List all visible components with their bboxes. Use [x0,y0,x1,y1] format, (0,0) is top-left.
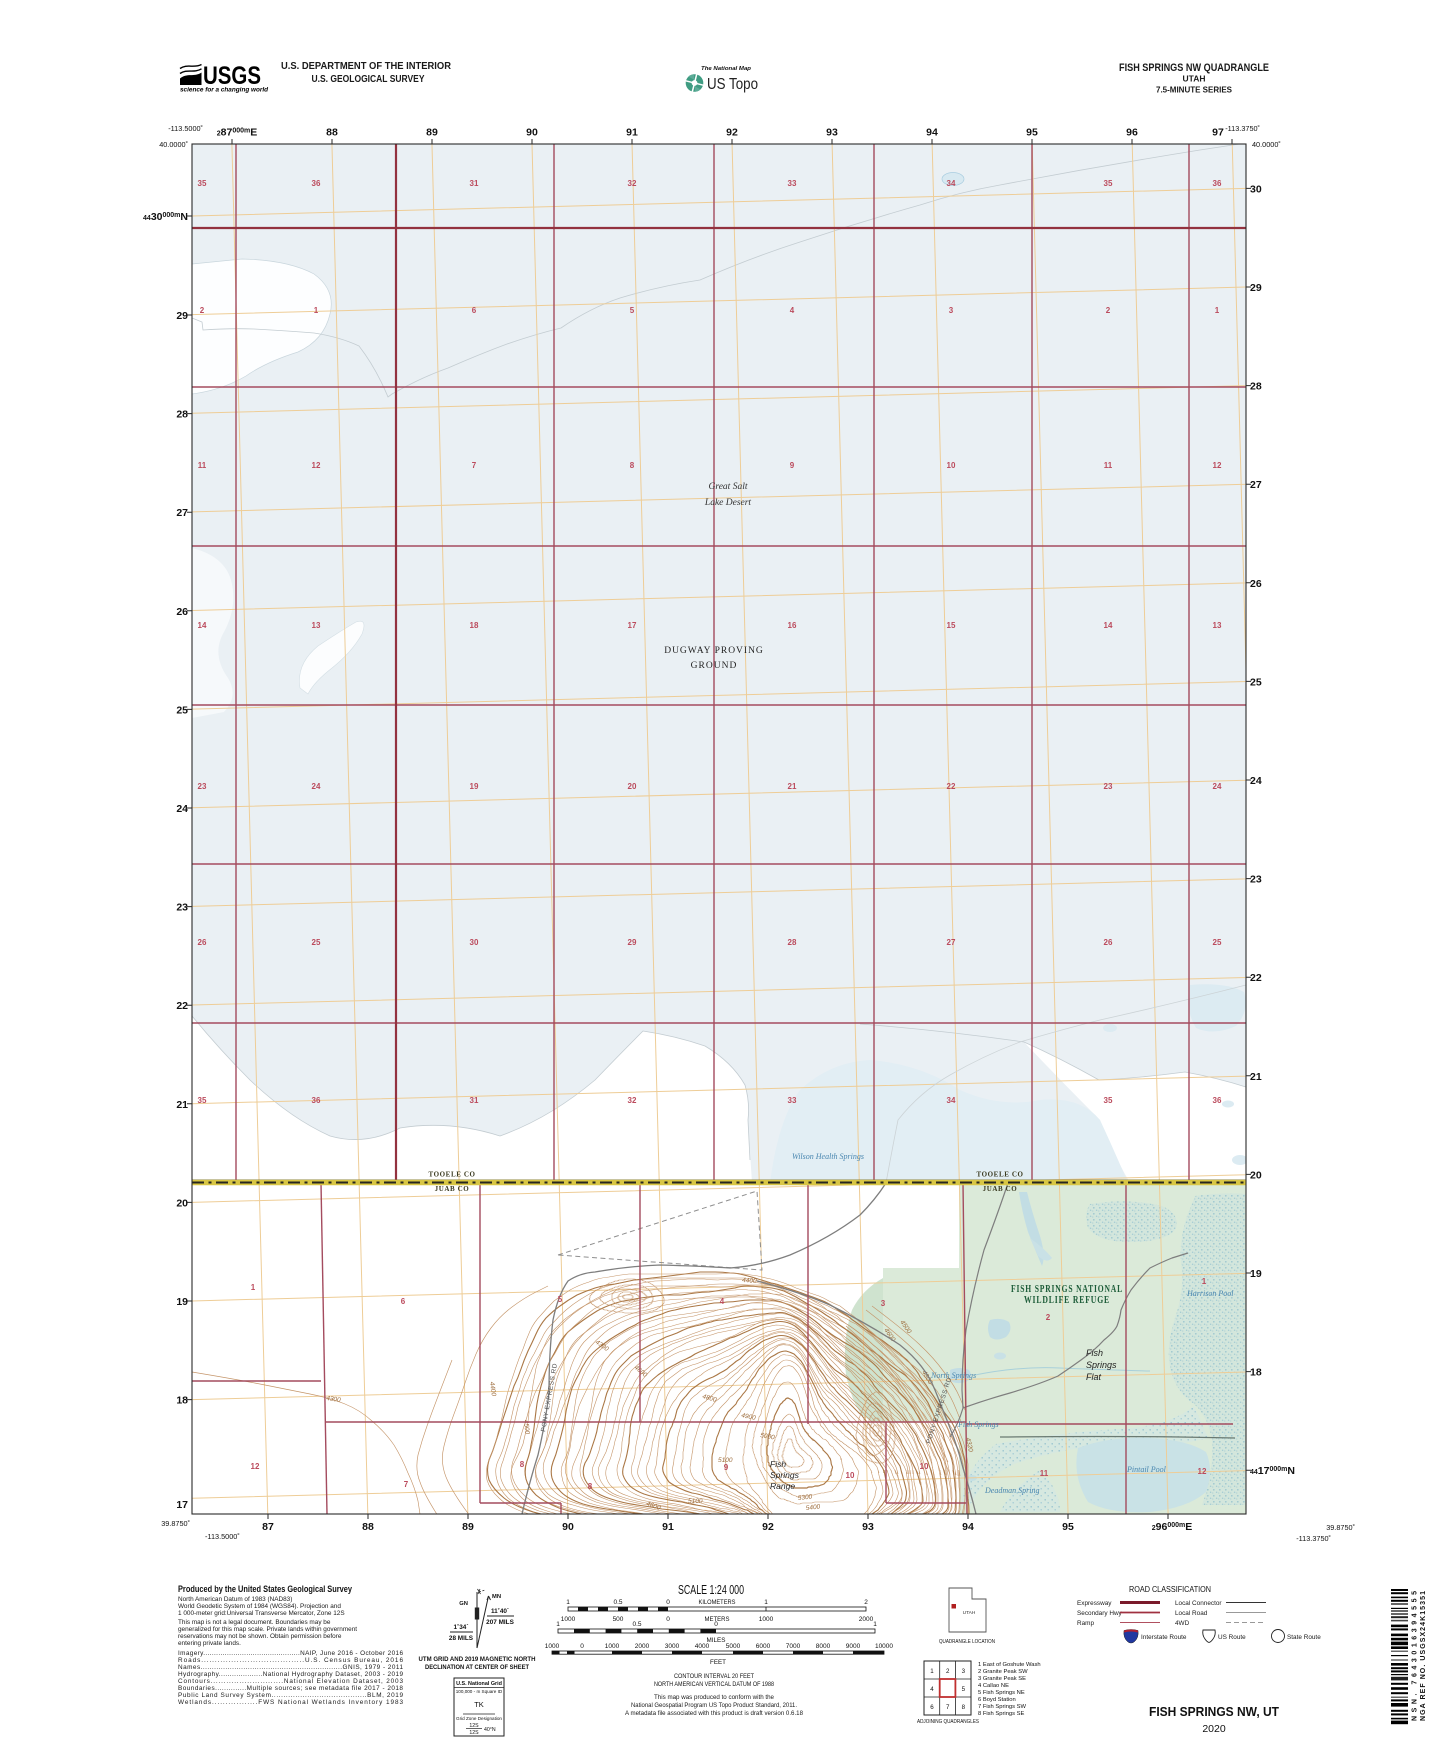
svg-text:Harrison Pool: Harrison Pool [1186,1289,1234,1298]
svg-text:7: 7 [472,461,477,470]
svg-text:12S: 12S [469,1723,479,1729]
svg-text:94: 94 [926,127,938,139]
svg-text:3 Granite Peak SE: 3 Granite Peak SE [978,1676,1026,1682]
svg-text:12: 12 [1198,1467,1207,1476]
svg-text:5100: 5100 [688,1498,703,1505]
svg-text:9: 9 [724,1463,729,1472]
svg-text:18: 18 [470,621,479,630]
svg-text:Hydrography...................: Hydrography....................National … [178,1671,403,1678]
svg-text:Boundaries..............Multip: Boundaries..............Multiple sources… [178,1685,403,1692]
svg-text:3: 3 [881,1299,886,1308]
svg-text:entering private lands.: entering private lands. [178,1640,241,1647]
svg-text:87: 87 [262,1521,274,1533]
svg-text:3: 3 [949,306,954,315]
svg-text:26: 26 [1250,578,1262,590]
svg-text:4400: 4400 [742,1277,757,1285]
svg-text:14: 14 [198,621,207,630]
svg-text:100,000 - m Square ID: 100,000 - m Square ID [456,1689,503,1694]
svg-text:7: 7 [404,1480,409,1489]
svg-text:Lake Desert: Lake Desert [704,498,752,508]
svg-text:35: 35 [198,179,207,188]
svg-text:296000mE: 296000mE [1152,1521,1193,1533]
svg-text:U.S. DEPARTMENT OF THE INTERIO: U.S. DEPARTMENT OF THE INTERIOR [281,61,452,72]
svg-text:23: 23 [1104,782,1113,791]
svg-text:0: 0 [666,1616,670,1623]
svg-text:10: 10 [846,1471,855,1480]
svg-text:26: 26 [1104,938,1113,947]
svg-text:Springs: Springs [770,1470,800,1480]
svg-text:2000: 2000 [859,1616,874,1623]
svg-text:Wetlands.................FWS: Wetlands.................FWS National We… [178,1699,403,1706]
svg-text:1 East of Goshute Wash: 1 East of Goshute Wash [978,1662,1041,1668]
svg-text:2: 2 [200,306,205,315]
svg-text:19: 19 [1250,1268,1262,1280]
svg-text:The National Map: The National Map [701,66,751,72]
svg-text:28: 28 [1250,381,1262,393]
svg-text:US Topo: US Topo [707,76,758,93]
svg-text:5: 5 [558,1295,563,1304]
svg-text:40.0000˚: 40.0000˚ [1252,140,1281,149]
svg-text:26: 26 [176,606,188,618]
svg-text:Pintail Pool: Pintail Pool [1126,1465,1167,1474]
svg-text:94: 94 [962,1521,974,1533]
svg-text:24: 24 [1250,775,1262,787]
svg-text:4: 4 [720,1297,725,1306]
svg-text:Interstate Route: Interstate Route [1141,1634,1187,1641]
svg-text:25: 25 [1250,676,1262,688]
svg-text:State Route: State Route [1287,1634,1321,1641]
svg-text:FEET: FEET [710,1659,726,1666]
svg-text:science for a changing world: science for a changing world [180,87,269,94]
svg-text:29: 29 [1250,282,1262,294]
svg-text:Local Road: Local Road [1175,1610,1208,1617]
svg-text:9000: 9000 [846,1643,861,1650]
svg-text:20: 20 [1250,1169,1262,1181]
svg-text:6 Boyd Station: 6 Boyd Station [978,1697,1016,1703]
svg-text:1: 1 [764,1599,768,1606]
svg-text:Springs: Springs [1086,1360,1117,1370]
svg-text:reservations may not be shown.: reservations may not be shown. Obtain pe… [178,1633,342,1640]
svg-text:This map is not a legal docume: This map is not a legal document. Bounda… [178,1619,331,1626]
svg-text:92: 92 [726,127,738,139]
svg-text:36: 36 [312,179,321,188]
svg-text:Deadman Spring: Deadman Spring [984,1486,1039,1495]
svg-text:10: 10 [947,461,956,470]
svg-text:20: 20 [628,782,637,791]
svg-text:91: 91 [662,1521,674,1533]
svg-text:36: 36 [312,1096,321,1105]
svg-text:2: 2 [1046,1313,1051,1322]
svg-text:4430000mN: 4430000mN [143,211,188,223]
svg-text:U.S. GEOLOGICAL SURVEY: U.S. GEOLOGICAL SURVEY [312,74,425,85]
svg-text:32: 32 [628,1096,637,1105]
svg-text:DUGWAY PROVING: DUGWAY PROVING [664,646,764,656]
svg-text:25: 25 [176,704,188,716]
svg-text:1: 1 [873,1621,877,1628]
svg-text:This map was produced to confo: This map was produced to conform with th… [654,1694,774,1701]
svg-text:11: 11 [1104,461,1113,470]
svg-text:25: 25 [1213,938,1222,947]
svg-text:17: 17 [628,621,637,630]
svg-text:-113.5000˚: -113.5000˚ [205,1532,240,1541]
svg-text:20: 20 [176,1197,188,1209]
svg-text:8000: 8000 [816,1643,831,1650]
svg-text:15: 15 [947,621,956,630]
svg-text:6: 6 [401,1297,406,1306]
svg-text:12S: 12S [469,1730,479,1736]
svg-text:3: 3 [962,1668,966,1675]
svg-text:Roads.........................: Roads...................................… [178,1657,403,1664]
svg-text:31: 31 [470,179,479,188]
svg-text:Wilson Health Springs: Wilson Health Springs [792,1152,864,1161]
svg-text:18: 18 [1250,1367,1262,1379]
svg-text:24: 24 [176,803,188,815]
svg-text:40°N: 40°N [484,1727,496,1733]
svg-text:24: 24 [312,782,321,791]
svg-text:500: 500 [613,1616,624,1623]
svg-text:19: 19 [470,782,479,791]
svg-text:World Geodetic System of 1984: World Geodetic System of 1984 (WGS84). P… [178,1603,341,1610]
svg-text:95: 95 [1062,1521,1074,1533]
svg-text:7000: 7000 [786,1643,801,1650]
svg-text:1000: 1000 [605,1643,620,1650]
svg-text:14: 14 [1104,621,1113,630]
svg-text:Public Land Survey System..: Public Land Survey System...............… [178,1692,403,1699]
svg-text:DECLINATION AT CENTER OF SHEET: DECLINATION AT CENTER OF SHEET [425,1664,529,1671]
svg-text:25: 25 [312,938,321,947]
svg-text:12: 12 [312,461,321,470]
svg-text:0: 0 [580,1643,584,1650]
svg-text:4: 4 [930,1686,934,1693]
svg-text:8: 8 [588,1482,593,1491]
svg-text:Great Salt: Great Salt [709,482,748,492]
svg-text:11: 11 [1040,1469,1049,1478]
svg-text:4000: 4000 [695,1643,710,1650]
svg-text:21: 21 [788,782,797,791]
svg-text:7: 7 [946,1704,950,1711]
svg-text:24: 24 [1213,782,1222,791]
svg-text:287000mE: 287000mE [217,127,258,139]
svg-text:GROUND: GROUND [691,661,738,671]
svg-text:MILES: MILES [707,1637,727,1644]
svg-text:1˚34´: 1˚34´ [454,1623,469,1631]
svg-text:4WD: 4WD [1175,1620,1190,1627]
svg-text:17: 17 [176,1499,188,1511]
svg-text:95: 95 [1026,127,1038,139]
svg-text:10: 10 [920,1462,929,1471]
svg-text:-113.3750˚: -113.3750˚ [1296,1534,1331,1543]
svg-text:TK: TK [474,1700,484,1709]
svg-text:8: 8 [630,461,635,470]
svg-text:4 Callao NE: 4 Callao NE [978,1683,1009,1689]
svg-text:7.5-MINUTE SERIES: 7.5-MINUTE SERIES [1156,85,1232,95]
svg-text:CONTOUR INTERVAL 20 FEET: CONTOUR INTERVAL 20 FEET [674,1673,754,1680]
svg-text:NSN. 7643016394555: NSN. 7643016394555 [1412,1591,1419,1721]
svg-text:28: 28 [788,938,797,947]
svg-text:ROAD CLASSIFICATION: ROAD CLASSIFICATION [1129,1585,1211,1594]
svg-text:1 000-meter grid:Universal Tra: 1 000-meter grid:Universal Transverse Me… [178,1610,345,1617]
svg-text:MN: MN [492,1594,501,1600]
svg-text:23: 23 [198,782,207,791]
svg-text:Grid Zone Designation: Grid Zone Designation [456,1716,502,1721]
svg-text:16: 16 [788,621,797,630]
svg-text:29: 29 [628,938,637,947]
svg-text:Local Connector: Local Connector [1175,1600,1222,1607]
svg-text:SCALE 1:24 000: SCALE 1:24 000 [678,1583,744,1597]
svg-text:89: 89 [426,127,438,139]
svg-text:21: 21 [1250,1071,1262,1083]
svg-text:30: 30 [1250,183,1262,195]
svg-text:1: 1 [251,1283,256,1292]
svg-text:31: 31 [470,1096,479,1105]
svg-text:Fish Springs: Fish Springs [957,1420,999,1429]
svg-text:35: 35 [198,1096,207,1105]
svg-text:11˚40´: 11˚40´ [491,1607,509,1615]
svg-text:Fish: Fish [1086,1348,1103,1358]
svg-text:JUAB CO: JUAB CO [435,1185,470,1193]
svg-text:19: 19 [176,1296,188,1308]
svg-text:207 MILS: 207 MILS [486,1619,514,1626]
svg-text:4: 4 [790,306,795,315]
svg-text:40.0000˚: 40.0000˚ [159,140,188,149]
svg-text:ADJOINING QUADRANGLES: ADJOINING QUADRANGLES [917,1719,980,1725]
svg-text:8 Fish Springs SE: 8 Fish Springs SE [978,1711,1025,1717]
svg-text:Secondary Hwy: Secondary Hwy [1077,1610,1123,1617]
svg-text:27: 27 [176,507,188,519]
svg-text:1000: 1000 [545,1643,560,1650]
svg-text:2: 2 [946,1668,950,1675]
svg-text:Range: Range [770,1481,795,1491]
svg-text:96: 96 [1126,127,1138,139]
svg-text:US Route: US Route [1218,1634,1246,1641]
svg-text:97: 97 [1212,127,1224,139]
svg-text:2000: 2000 [635,1643,650,1650]
svg-text:UTAH: UTAH [963,1610,976,1616]
svg-text:Ramp: Ramp [1077,1620,1094,1627]
svg-text:22: 22 [947,782,956,791]
svg-text:93: 93 [826,127,838,139]
svg-text:89: 89 [462,1521,474,1533]
svg-text:88: 88 [362,1521,374,1533]
svg-text:4417000mN: 4417000mN [1250,1465,1295,1477]
svg-text:7 Fish Springs SW: 7 Fish Springs SW [978,1704,1027,1710]
svg-text:NGA REF NO. USGSX24K15351: NGA REF NO. USGSX24K15351 [1420,1591,1427,1721]
svg-text:30: 30 [470,938,479,947]
svg-text:36: 36 [1213,179,1222,188]
svg-text:5000: 5000 [726,1643,741,1650]
svg-text:TOOELE CO: TOOELE CO [976,1171,1023,1179]
svg-text:0: 0 [714,1621,718,1628]
svg-text:91: 91 [626,127,638,139]
svg-text:3000: 3000 [665,1643,680,1650]
svg-text:13: 13 [312,621,321,630]
svg-text:23: 23 [176,902,188,914]
svg-text:23: 23 [1250,874,1262,886]
svg-text:-113.3750˚: -113.3750˚ [1225,124,1260,133]
svg-text:GN: GN [459,1601,468,1607]
svg-text:2: 2 [864,1599,868,1606]
svg-text:-113.5000˚: -113.5000˚ [168,124,203,133]
svg-text:A metadata file associated wit: A metadata file associated with this pro… [625,1710,803,1717]
svg-text:6: 6 [930,1704,934,1711]
svg-text:13: 13 [1213,621,1222,630]
svg-text:27: 27 [947,938,956,947]
svg-text:1000: 1000 [561,1616,576,1623]
svg-text:39.8750˚: 39.8750˚ [161,1519,190,1528]
svg-text:35: 35 [1104,179,1113,188]
svg-text:generalized for this map scale: generalized for this map scale. Private … [178,1626,357,1633]
svg-text:NORTH AMERICAN VERTICAL DATUM: NORTH AMERICAN VERTICAL DATUM OF 1988 [654,1681,774,1688]
svg-text:1: 1 [314,306,319,315]
svg-text:2: 2 [1106,306,1111,315]
svg-text:1: 1 [930,1668,934,1675]
svg-text:2020: 2020 [1202,1723,1226,1735]
svg-text:1: 1 [566,1599,570,1606]
svg-text:UTM GRID AND 2019 MAGNETIC NOR: UTM GRID AND 2019 MAGNETIC NORTH [419,1656,536,1663]
svg-text:FISH SPRINGS NW, UT: FISH SPRINGS NW, UT [1149,1704,1279,1719]
svg-text:1: 1 [556,1621,560,1628]
svg-text:90: 90 [562,1521,574,1533]
svg-text:35: 35 [1104,1096,1113,1105]
svg-text:Flat: Flat [1086,1372,1102,1382]
svg-text:6: 6 [472,306,477,315]
svg-text:JUAB CO: JUAB CO [983,1185,1018,1193]
svg-text:Imagery.......................: Imagery.................................… [178,1650,403,1657]
svg-text:Produced by the United States: Produced by the United States Geological… [178,1584,352,1594]
svg-text:26: 26 [198,938,207,947]
svg-text:0: 0 [666,1599,670,1606]
svg-text:Fish: Fish [770,1459,786,1469]
svg-text:FISH SPRINGS NW QUADRANGLE: FISH SPRINGS NW QUADRANGLE [1119,62,1269,74]
svg-text:28: 28 [176,409,188,421]
svg-text:39.8750˚: 39.8750˚ [1326,1523,1355,1532]
svg-text:WILDLIFE REFUGE: WILDLIFE REFUGE [1024,1294,1110,1306]
svg-text:22: 22 [176,1000,188,1012]
svg-text:34: 34 [947,1096,956,1105]
svg-text:28 MILS: 28 MILS [449,1635,474,1642]
svg-text:88: 88 [326,127,338,139]
svg-text:North American Datum of 1983 (: North American Datum of 1983 (NAD83) [178,1596,292,1603]
svg-text:33: 33 [788,1096,797,1105]
svg-text:33: 33 [788,179,797,188]
svg-text:92: 92 [762,1521,774,1533]
svg-text:U.S. National Grid: U.S. National Grid [456,1681,502,1687]
svg-text:21: 21 [176,1099,188,1111]
svg-text:10000: 10000 [875,1643,893,1650]
svg-text:8: 8 [962,1704,966,1711]
svg-text:5: 5 [630,306,635,315]
svg-text:93: 93 [862,1521,874,1533]
svg-text:1: 1 [1215,306,1220,315]
svg-text:5: 5 [962,1686,966,1693]
svg-text:32: 32 [628,179,637,188]
svg-text:29: 29 [176,310,188,322]
svg-text:34: 34 [947,179,956,188]
svg-text:TOOELE CO: TOOELE CO [428,1171,475,1179]
svg-text:5 Fish Springs NE: 5 Fish Springs NE [978,1690,1025,1696]
svg-text:1000: 1000 [759,1616,774,1623]
svg-text:9: 9 [790,461,795,470]
svg-text:36: 36 [1213,1096,1222,1105]
svg-text:0.5: 0.5 [632,1621,641,1628]
svg-text:QUADRANGLE LOCATION: QUADRANGLE LOCATION [939,1639,995,1645]
svg-text:National Geospatial Program US: National Geospatial Program US Topo Prod… [631,1702,797,1709]
svg-text:1: 1 [1202,1277,1207,1286]
svg-text:Contours......................: Contours............................Nati… [178,1678,403,1685]
svg-text:90: 90 [526,127,538,139]
svg-text:11: 11 [198,461,207,470]
svg-text:22: 22 [1250,972,1262,984]
svg-text:6000: 6000 [756,1643,771,1650]
svg-text:KILOMETERS: KILOMETERS [699,1599,737,1606]
svg-text:0.5: 0.5 [613,1599,622,1606]
svg-text:12: 12 [251,1462,260,1471]
svg-text:12: 12 [1213,461,1222,470]
svg-text:27: 27 [1250,479,1262,491]
svg-text:Expressway: Expressway [1077,1600,1112,1607]
svg-text:8: 8 [520,1460,525,1469]
svg-text:2 Granite Peak SW: 2 Granite Peak SW [978,1669,1028,1675]
svg-text:Names.........................: Names...................................… [178,1664,403,1671]
svg-text:18: 18 [176,1395,188,1407]
svg-text:UTAH: UTAH [1183,74,1206,84]
